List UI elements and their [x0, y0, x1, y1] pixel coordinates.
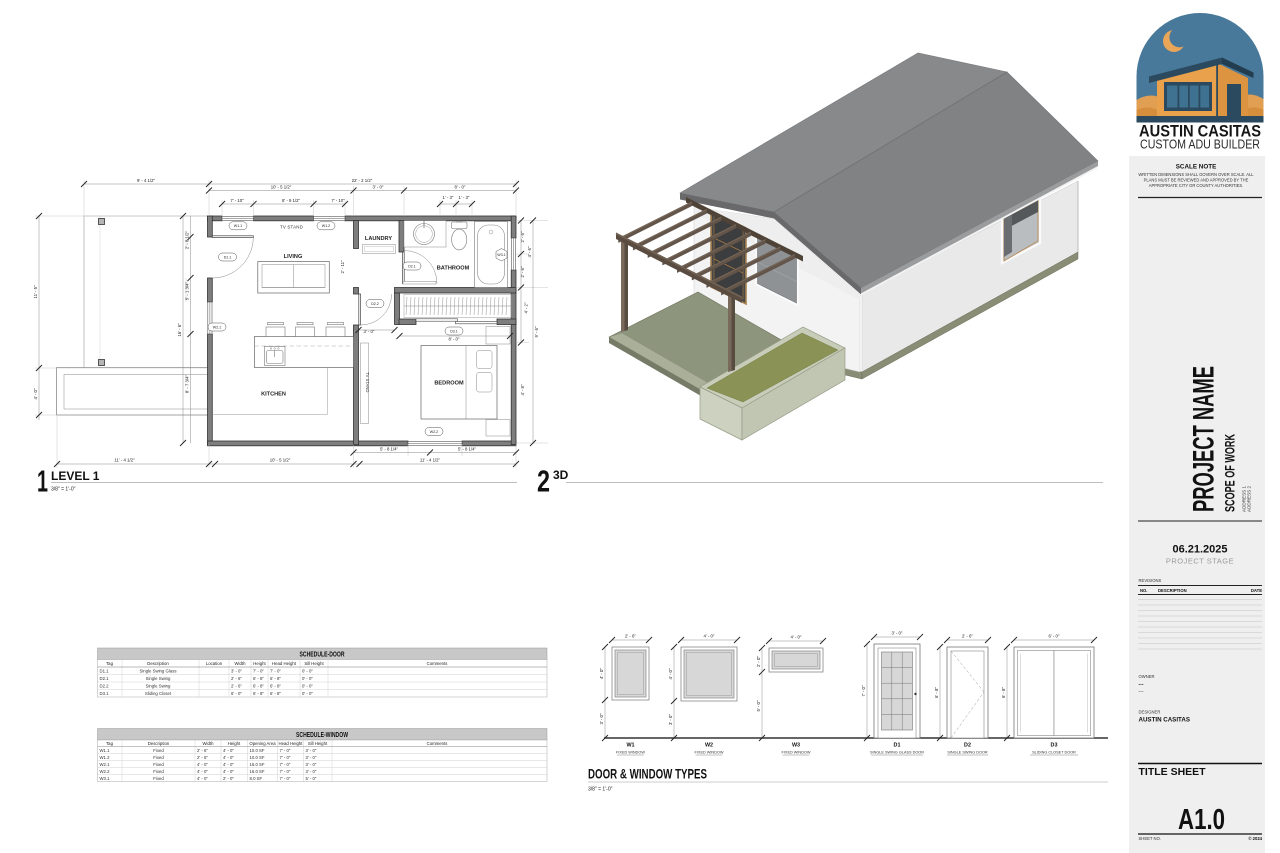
svg-text:11' - 4 1/2": 11' - 4 1/2"	[114, 458, 135, 463]
svg-text:Width: Width	[235, 661, 247, 666]
svg-text:9' - 6": 9' - 6"	[534, 326, 539, 337]
svg-text:6' - 0": 6' - 0"	[1049, 634, 1060, 639]
svg-text:PROJECT NAME: PROJECT NAME	[1188, 366, 1221, 512]
svg-text:W1.2: W1.2	[322, 224, 330, 228]
svg-text:6' - 8": 6' - 8"	[1001, 687, 1006, 698]
svg-text:D2: D2	[964, 743, 971, 749]
svg-text:11' - 5": 11' - 5"	[33, 285, 38, 298]
svg-text:2' - 6": 2' - 6"	[962, 634, 973, 639]
svg-text:3' - 0": 3' - 0"	[599, 713, 604, 724]
svg-text:Width: Width	[203, 741, 215, 746]
svg-text:D2.1: D2.1	[408, 264, 416, 268]
svg-text:3' - 0": 3' - 0"	[231, 669, 242, 674]
svg-text:22' - 2 1/2": 22' - 2 1/2"	[352, 178, 373, 183]
svg-text:7' - 0": 7' - 0"	[270, 669, 281, 674]
svg-text:D1: D1	[894, 743, 901, 749]
svg-text:Head Height: Head Height	[272, 661, 297, 666]
svg-text:2: 2	[537, 464, 550, 499]
svg-text:D2.2: D2.2	[100, 684, 110, 689]
svg-text:W2: W2	[705, 743, 713, 749]
svg-text:OWNER: OWNER	[1139, 674, 1155, 679]
svg-text:0' - 0": 0' - 0"	[302, 669, 313, 674]
svg-text:2' - 6": 2' - 6"	[231, 676, 242, 681]
svg-text:BEDROOM: BEDROOM	[434, 381, 464, 387]
svg-text:W2.2: W2.2	[100, 769, 111, 774]
svg-text:Fixed: Fixed	[153, 755, 164, 760]
svg-text:1' - 3": 1' - 3"	[443, 195, 454, 200]
svg-text:Fixed: Fixed	[153, 748, 164, 753]
svg-text:8' - 9 1/2": 8' - 9 1/2"	[282, 198, 301, 203]
svg-text:LEVEL 1: LEVEL 1	[51, 469, 100, 483]
svg-text:7' - 0": 7' - 0"	[280, 755, 291, 760]
svg-text:Height: Height	[253, 661, 266, 666]
svg-text:Comments: Comments	[427, 661, 448, 666]
svg-text:D2.2: D2.2	[371, 302, 379, 306]
svg-text:FIXED WINDOW: FIXED WINDOW	[695, 751, 724, 755]
svg-text:4' - 0": 4' - 0"	[704, 634, 715, 639]
svg-text:4' - 2": 4' - 2"	[524, 302, 529, 313]
svg-text:7' - 0": 7' - 0"	[253, 669, 264, 674]
svg-text:4' - 0": 4' - 0"	[223, 769, 234, 774]
svg-text:SINGLE SWING DOOR: SINGLE SWING DOOR	[947, 751, 988, 755]
svg-text:Fixed: Fixed	[153, 776, 164, 781]
svg-text:Comments: Comments	[427, 741, 448, 746]
svg-text:W1.2: W1.2	[100, 755, 111, 760]
svg-text:Fixed: Fixed	[153, 762, 164, 767]
svg-text:10.0 SF: 10.0 SF	[250, 755, 265, 760]
svg-text:D1.1: D1.1	[100, 669, 110, 674]
svg-text:6' - 0": 6' - 0"	[231, 691, 242, 696]
svg-text:SCHEDULE-WINDOW: SCHEDULE-WINDOW	[296, 732, 348, 739]
svg-text:Head Height: Head Height	[279, 741, 304, 746]
svg-text:TV STAND: TV STAND	[280, 225, 303, 230]
svg-text:---: ---	[1139, 682, 1144, 688]
svg-text:0' - 0": 0' - 0"	[302, 691, 313, 696]
svg-text:7' - 0": 7' - 0"	[861, 685, 866, 696]
svg-text:Sliding Closet: Sliding Closet	[145, 691, 172, 696]
svg-text:4' - 0": 4' - 0"	[599, 668, 604, 679]
svg-text:CUSTOM ADU BUILDER: CUSTOM ADU BUILDER	[1140, 138, 1260, 152]
svg-text:2' - 6": 2' - 6"	[197, 748, 208, 753]
svg-text:4' - 0": 4' - 0"	[197, 776, 208, 781]
svg-text:2' - 6": 2' - 6"	[625, 634, 636, 639]
svg-text:6' - 8": 6' - 8"	[270, 684, 281, 689]
svg-text:10' - 5 1/2": 10' - 5 1/2"	[271, 185, 292, 190]
svg-text:5' - 8 1/4": 5' - 8 1/4"	[458, 447, 477, 452]
svg-text:D3.1: D3.1	[450, 329, 458, 333]
svg-text:5' - 0": 5' - 0"	[756, 700, 761, 711]
svg-text:8' - 0": 8' - 0"	[455, 185, 466, 190]
svg-text:W1.1: W1.1	[100, 748, 111, 753]
svg-text:10.0 SF: 10.0 SF	[250, 748, 265, 753]
svg-text:2' - 6": 2' - 6"	[197, 755, 208, 760]
svg-text:1: 1	[37, 464, 48, 499]
svg-text:3' - 0": 3' - 0"	[306, 769, 317, 774]
svg-text:6' - 8": 6' - 8"	[270, 691, 281, 696]
svg-text:SINGLE SWING GLASS DOOR: SINGLE SWING GLASS DOOR	[870, 751, 924, 755]
svg-text:Tag: Tag	[106, 661, 114, 666]
svg-text:2' - 6": 2' - 6"	[520, 266, 525, 277]
svg-text:3' - 0": 3' - 0"	[373, 185, 384, 190]
svg-text:W1: W1	[626, 743, 634, 749]
svg-text:4' - 0": 4' - 0"	[223, 748, 234, 753]
svg-text:D2.1: D2.1	[100, 676, 110, 681]
svg-text:NO.: NO.	[1140, 588, 1147, 593]
svg-text:Single Swing Glass: Single Swing Glass	[139, 669, 176, 674]
svg-text:0' - 0": 0' - 0"	[302, 684, 313, 689]
svg-text:SLIDING CLOSET DOOR: SLIDING CLOSET DOOR	[1032, 751, 1076, 755]
svg-text:3' - 0": 3' - 0"	[306, 748, 317, 753]
svg-text:6' - 8": 6' - 8"	[934, 687, 939, 698]
svg-text:W3.1: W3.1	[497, 253, 505, 257]
svg-text:3/8" = 1'-0": 3/8" = 1'-0"	[588, 787, 613, 793]
svg-text:DESIGNER: DESIGNER	[1139, 710, 1161, 715]
svg-text:16' - 6": 16' - 6"	[177, 323, 182, 337]
svg-text:3' - 0": 3' - 0"	[668, 714, 673, 725]
svg-text:06.21.2025: 06.21.2025	[1172, 544, 1227, 556]
svg-text:W2.1: W2.1	[100, 762, 111, 767]
svg-text:6' - 8": 6' - 8"	[253, 684, 264, 689]
svg-text:---: ---	[1139, 689, 1144, 695]
svg-text:3' - 0": 3' - 0"	[306, 762, 317, 767]
svg-text:DESCRIPTION: DESCRIPTION	[1158, 588, 1187, 593]
svg-text:Description: Description	[147, 661, 169, 666]
svg-text:REVISIONS: REVISIONS	[1139, 578, 1162, 583]
svg-text:4' - 0": 4' - 0"	[668, 668, 673, 679]
svg-text:10' - 5 1/2": 10' - 5 1/2"	[270, 458, 291, 463]
svg-text:2' - 6": 2' - 6"	[231, 684, 242, 689]
svg-text:2' - 0": 2' - 0"	[223, 776, 234, 781]
svg-text:FIXED WINDOW: FIXED WINDOW	[782, 751, 811, 755]
svg-text:D1.1: D1.1	[224, 255, 232, 259]
svg-text:AUSTIN CASITAS: AUSTIN CASITAS	[1139, 717, 1190, 724]
svg-text:Opening Area: Opening Area	[249, 741, 276, 746]
svg-text:2' - 0": 2' - 0"	[756, 656, 761, 667]
svg-text:ADDRESS 2: ADDRESS 2	[1247, 486, 1252, 512]
svg-text:Height: Height	[228, 741, 241, 746]
svg-text:7' - 10": 7' - 10"	[331, 198, 345, 203]
svg-text:SCALE NOTE: SCALE NOTE	[1176, 164, 1217, 171]
svg-text:© 2024: © 2024	[1248, 836, 1262, 841]
svg-text:5' - 0": 5' - 0"	[306, 776, 317, 781]
svg-text:Fixed: Fixed	[153, 769, 164, 774]
svg-text:8' - 7 3/4": 8' - 7 3/4"	[185, 374, 190, 393]
svg-text:D3.1: D3.1	[100, 691, 110, 696]
svg-text:16.0 SF: 16.0 SF	[250, 769, 265, 774]
svg-text:FIXED WINDOW: FIXED WINDOW	[616, 751, 645, 755]
svg-text:2' - 6": 2' - 6"	[520, 231, 525, 242]
svg-text:Sill Height: Sill Height	[308, 741, 328, 746]
svg-text:APPROPRIATE CITY OR COUNTY AUT: APPROPRIATE CITY OR COUNTY AUTHORITIES.	[1149, 183, 1243, 188]
svg-text:8.0 SF: 8.0 SF	[250, 776, 263, 781]
svg-text:11' - 4 1/2": 11' - 4 1/2"	[420, 458, 441, 463]
svg-text:4' - 6": 4' - 6"	[527, 246, 532, 257]
svg-text:4' - 0": 4' - 0"	[33, 388, 38, 399]
svg-text:0' - 0": 0' - 0"	[302, 676, 313, 681]
svg-text:W2.1: W2.1	[213, 325, 221, 329]
svg-text:3/8" = 1'-0": 3/8" = 1'-0"	[51, 487, 76, 493]
svg-text:7' - 0": 7' - 0"	[280, 748, 291, 753]
svg-text:7' - 0": 7' - 0"	[280, 776, 291, 781]
svg-text:7' - 0": 7' - 0"	[280, 762, 291, 767]
svg-text:PROJECT STAGE: PROJECT STAGE	[1166, 557, 1234, 566]
svg-text:BATHROOM: BATHROOM	[437, 266, 470, 272]
svg-text:4' - 0": 4' - 0"	[197, 762, 208, 767]
svg-text:LIVING: LIVING	[284, 254, 303, 260]
svg-text:DOOR & WINDOW TYPES: DOOR & WINDOW TYPES	[588, 766, 707, 782]
svg-text:6' - 8": 6' - 8"	[253, 676, 264, 681]
svg-text:A1.0: A1.0	[1178, 804, 1225, 836]
svg-text:3' - 0": 3' - 0"	[306, 755, 317, 760]
svg-text:4' - 0": 4' - 0"	[223, 755, 234, 760]
svg-text:3' - 0": 3' - 0"	[892, 631, 903, 636]
svg-text:Location: Location	[206, 661, 223, 666]
svg-text:SHEET NO.: SHEET NO.	[1139, 836, 1162, 841]
svg-text:Single Swing: Single Swing	[146, 684, 171, 689]
svg-text:SCHEDULE-DOOR: SCHEDULE-DOOR	[300, 652, 345, 659]
svg-text:SCOPE OF WORK: SCOPE OF WORK	[1223, 434, 1238, 512]
svg-text:Tag: Tag	[106, 741, 114, 746]
svg-text:4' - 0": 4' - 0"	[223, 762, 234, 767]
svg-text:5' - 1 3/4": 5' - 1 3/4"	[185, 281, 190, 300]
svg-text:7' - 0": 7' - 0"	[280, 769, 291, 774]
svg-text:16.0 SF: 16.0 SF	[250, 762, 265, 767]
svg-text:W2.2: W2.2	[430, 430, 438, 434]
svg-text:7' - 10": 7' - 10"	[230, 198, 244, 203]
svg-text:WRITTEN DIMENSIONS SHALL GOVER: WRITTEN DIMENSIONS SHALL GOVERN OVER SCA…	[1138, 172, 1254, 177]
svg-text:6' - 8": 6' - 8"	[270, 676, 281, 681]
svg-text:5' - 8 1/4": 5' - 8 1/4"	[380, 447, 399, 452]
svg-text:TV STAND: TV STAND	[365, 372, 370, 392]
svg-text:Description: Description	[148, 741, 170, 746]
svg-text:KITCHEN: KITCHEN	[261, 392, 286, 398]
svg-text:3D: 3D	[553, 468, 569, 482]
svg-text:TITLE SHEET: TITLE SHEET	[1139, 766, 1207, 778]
svg-text:W1.1: W1.1	[234, 224, 242, 228]
svg-text:4' - 0": 4' - 0"	[791, 635, 802, 640]
svg-text:8' - 0": 8' - 0"	[449, 337, 460, 342]
svg-text:1' - 3": 1' - 3"	[459, 195, 470, 200]
svg-text:6' - 8": 6' - 8"	[253, 691, 264, 696]
svg-text:D3: D3	[1051, 743, 1058, 749]
svg-text:W3: W3	[792, 743, 800, 749]
svg-text:Single Swing: Single Swing	[146, 676, 171, 681]
svg-text:PLANS MUST BE REVIEWED AND APP: PLANS MUST BE REVIEWED AND APPROVED BY T…	[1144, 178, 1249, 183]
svg-text:Sill Height: Sill Height	[304, 661, 324, 666]
svg-text:4' - 0": 4' - 0"	[197, 769, 208, 774]
svg-text:2' - 11": 2' - 11"	[340, 260, 345, 273]
svg-text:9' - 4 1/2": 9' - 4 1/2"	[137, 178, 156, 183]
svg-text:2' - 8 1/2": 2' - 8 1/2"	[185, 230, 190, 249]
svg-text:LAUNDRY: LAUNDRY	[365, 236, 392, 242]
svg-text:4' - 8": 4' - 8"	[520, 384, 525, 395]
svg-text:W3.1: W3.1	[100, 776, 111, 781]
svg-text:DATE: DATE	[1251, 588, 1262, 593]
